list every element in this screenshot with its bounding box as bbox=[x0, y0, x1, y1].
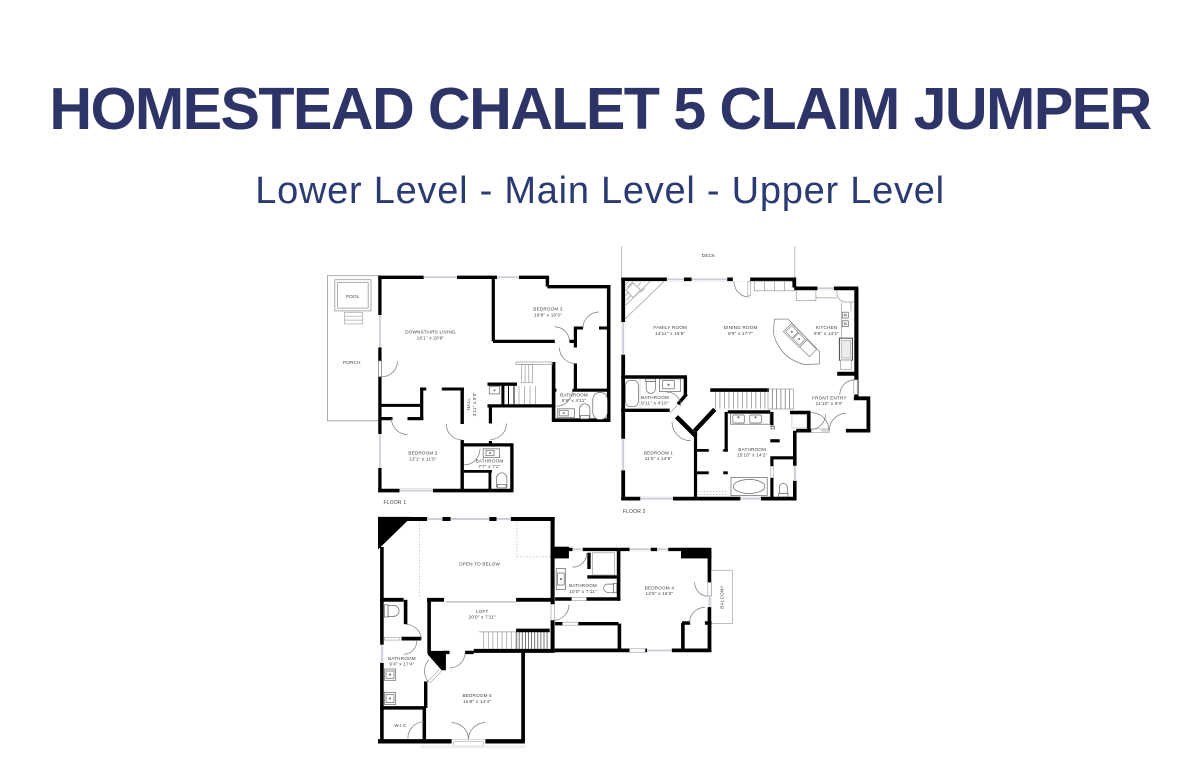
svg-text:15'8" x 14'4": 15'8" x 14'4" bbox=[463, 699, 491, 704]
svg-text:8'9" x 4'11": 8'9" x 4'11" bbox=[562, 398, 587, 403]
svg-text:13'1" x 11'5": 13'1" x 11'5" bbox=[409, 457, 437, 462]
svg-text:18'9" x 10'3": 18'9" x 10'3" bbox=[534, 312, 562, 317]
svg-text:15'10" x 14'2": 15'10" x 14'2" bbox=[737, 453, 768, 458]
svg-text:BATHROOM: BATHROOM bbox=[476, 459, 504, 464]
svg-text:8'9" x 17'7": 8'9" x 17'7" bbox=[728, 331, 753, 336]
svg-text:BEDROOM 2: BEDROOM 2 bbox=[408, 451, 438, 456]
svg-text:BATHROOM: BATHROOM bbox=[641, 395, 669, 400]
svg-text:HALL: HALL bbox=[466, 398, 471, 411]
svg-text:BATHROOM: BATHROOM bbox=[560, 393, 588, 398]
svg-text:LOFT: LOFT bbox=[476, 609, 489, 614]
svg-text:BALCONY: BALCONY bbox=[720, 585, 725, 608]
svg-text:10'0" x 7'11": 10'0" x 7'11" bbox=[569, 589, 597, 594]
svg-text:14'8" x 16'3": 14'8" x 16'3" bbox=[646, 591, 674, 596]
svg-text:OPEN TO BELOW: OPEN TO BELOW bbox=[459, 562, 500, 567]
svg-text:FRONT ENTRY: FRONT ENTRY bbox=[812, 395, 847, 400]
svg-text:BEDROOM 3: BEDROOM 3 bbox=[533, 307, 563, 312]
svg-text:18'1" x 20'6": 18'1" x 20'6" bbox=[417, 335, 445, 340]
svg-text:BATHROOM: BATHROOM bbox=[569, 583, 597, 588]
svg-text:FLOOR 2: FLOOR 2 bbox=[623, 509, 646, 515]
svg-text:BEDROOM 4: BEDROOM 4 bbox=[645, 585, 675, 590]
svg-text:FAMILY ROOM: FAMILY ROOM bbox=[653, 325, 687, 330]
svg-text:POOL: POOL bbox=[346, 294, 360, 299]
svg-text:BEDROOM 5: BEDROOM 5 bbox=[463, 693, 493, 698]
svg-text:9'4" x 17'4": 9'4" x 17'4" bbox=[389, 662, 414, 667]
svg-text:11'10" x 9'0": 11'10" x 9'0" bbox=[816, 401, 844, 406]
svg-text:DOWNSTAIRS LIVING: DOWNSTAIRS LIVING bbox=[405, 329, 456, 334]
svg-text:DINING ROOM: DINING ROOM bbox=[724, 325, 758, 330]
svg-text:BEDROOM 1: BEDROOM 1 bbox=[644, 450, 674, 455]
svg-text:9'6" x 14'2": 9'6" x 14'2" bbox=[814, 331, 839, 336]
svg-text:BATHROOM: BATHROOM bbox=[738, 447, 766, 452]
svg-text:9'11" x 4'10": 9'11" x 4'10" bbox=[641, 401, 669, 406]
svg-text:11'6" x 14'6": 11'6" x 14'6" bbox=[645, 456, 673, 461]
svg-text:BATHROOM: BATHROOM bbox=[388, 656, 416, 661]
svg-text:W.I.C: W.I.C bbox=[394, 723, 407, 728]
svg-text:PORCH: PORCH bbox=[343, 360, 361, 365]
svg-text:20'0" x 7'11": 20'0" x 7'11" bbox=[468, 615, 496, 620]
svg-text:FLOOR 1: FLOOR 1 bbox=[384, 500, 407, 506]
svg-text:14'11" x 15'5": 14'11" x 15'5" bbox=[655, 331, 685, 336]
svg-text:3'11" x 9'3": 3'11" x 9'3" bbox=[472, 391, 477, 416]
svg-text:7'7" x 7'2": 7'7" x 7'2" bbox=[478, 464, 500, 469]
svg-text:DECK: DECK bbox=[702, 253, 716, 258]
svg-text:KITCHEN: KITCHEN bbox=[816, 325, 838, 330]
